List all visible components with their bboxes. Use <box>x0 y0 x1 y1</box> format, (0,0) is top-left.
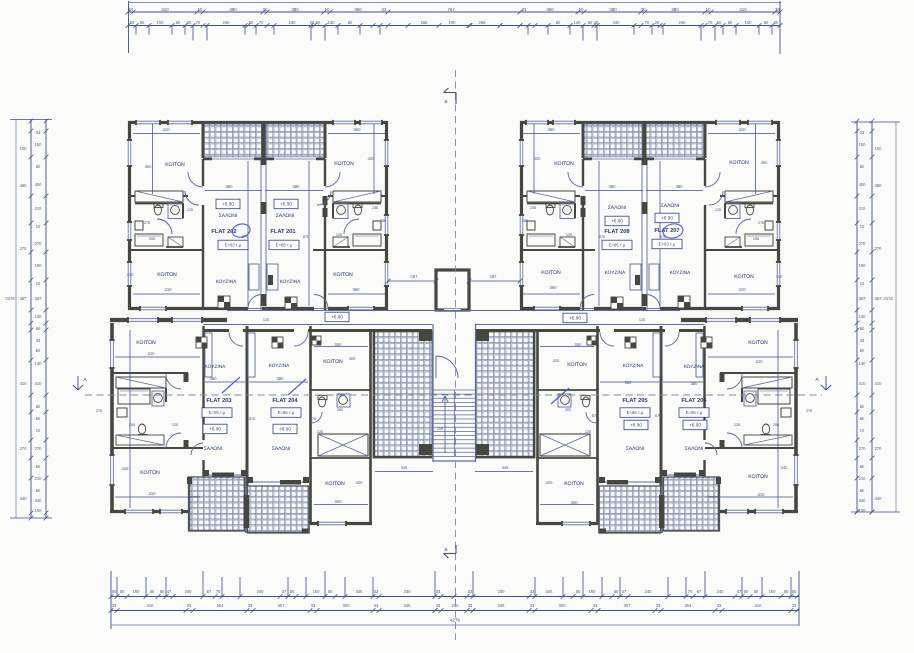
svg-text:ΣΑΛΟΝΙ: ΣΑΛΟΝΙ <box>204 446 223 452</box>
svg-text:80: 80 <box>744 589 749 594</box>
svg-text:80: 80 <box>140 20 145 25</box>
svg-text:380: 380 <box>671 7 679 12</box>
svg-text:387: 387 <box>859 296 867 301</box>
svg-text:870: 870 <box>592 414 598 418</box>
svg-text:80: 80 <box>150 589 155 594</box>
svg-text:+6.90: +6.90 <box>222 202 234 207</box>
svg-text:FLAT 206: FLAT 206 <box>681 398 706 404</box>
svg-text:410: 410 <box>739 7 747 12</box>
svg-text:345: 345 <box>356 589 364 594</box>
svg-text:190: 190 <box>35 263 43 268</box>
svg-text:E=86 τ.μ: E=86 τ.μ <box>278 410 295 415</box>
svg-text:345: 345 <box>546 589 554 594</box>
svg-text:767: 767 <box>447 7 455 12</box>
svg-text:870: 870 <box>310 417 316 421</box>
svg-text:270: 270 <box>35 241 43 246</box>
svg-text:33: 33 <box>128 7 133 12</box>
svg-text:440: 440 <box>35 498 43 503</box>
svg-text:120: 120 <box>263 318 269 322</box>
svg-text:270: 270 <box>875 246 883 251</box>
svg-text:360: 360 <box>353 287 361 292</box>
svg-text:70: 70 <box>708 20 713 25</box>
svg-text:33: 33 <box>382 7 387 12</box>
svg-text:ΚΟΙΤΩΝ: ΚΟΙΤΩΝ <box>334 161 354 167</box>
svg-text:FLAT 201: FLAT 201 <box>270 229 295 235</box>
svg-text:150: 150 <box>35 508 43 513</box>
svg-text:33: 33 <box>775 7 780 12</box>
svg-text:60: 60 <box>36 416 41 421</box>
svg-text:450: 450 <box>859 182 867 187</box>
svg-text:ΣΑΛΟΝΙ: ΣΑΛΟΝΙ <box>276 213 295 219</box>
svg-text:33: 33 <box>468 603 473 608</box>
svg-text:410: 410 <box>739 127 747 132</box>
svg-text:270: 270 <box>875 446 883 451</box>
svg-text:410: 410 <box>859 381 867 386</box>
svg-text:130: 130 <box>859 361 867 366</box>
svg-text:33: 33 <box>717 603 722 608</box>
svg-text:ΚΟΥΖΙΝΑ: ΚΟΥΖΙΝΑ <box>216 279 238 285</box>
svg-text:420: 420 <box>553 358 560 363</box>
svg-text:47: 47 <box>167 589 172 594</box>
svg-text:410: 410 <box>165 287 173 292</box>
svg-text:80: 80 <box>576 589 581 594</box>
svg-text:ΚΟΙΤΩΝ: ΚΟΙΤΩΝ <box>157 272 177 278</box>
svg-text:410: 410 <box>739 287 747 292</box>
svg-text:E=86 τ.μ: E=86 τ.μ <box>627 410 644 415</box>
svg-text:50: 50 <box>774 20 779 25</box>
svg-text:240: 240 <box>717 589 725 594</box>
svg-text:33: 33 <box>436 603 441 608</box>
svg-text:80: 80 <box>290 589 295 594</box>
svg-text:33: 33 <box>248 603 253 608</box>
svg-text:33: 33 <box>468 589 473 594</box>
svg-text:60: 60 <box>860 416 865 421</box>
svg-text:410: 410 <box>875 381 883 386</box>
svg-text:400: 400 <box>349 356 356 361</box>
svg-text:80: 80 <box>36 164 41 169</box>
svg-text:120: 120 <box>734 423 740 427</box>
svg-text:+6.90: +6.90 <box>209 427 221 432</box>
svg-text:33: 33 <box>860 338 865 343</box>
svg-text:190: 190 <box>859 263 867 268</box>
svg-text:240: 240 <box>289 20 297 25</box>
svg-text:380: 380 <box>691 381 699 386</box>
svg-text:70: 70 <box>259 20 264 25</box>
svg-text:410: 410 <box>147 603 155 608</box>
svg-text:E=93 τ.μ: E=93 τ.μ <box>225 243 242 248</box>
svg-text:80: 80 <box>112 589 117 594</box>
svg-text:360: 360 <box>546 7 554 12</box>
svg-text:33: 33 <box>374 589 379 594</box>
svg-text:60: 60 <box>860 488 865 493</box>
svg-text:ΣΑΛΟΝΙ: ΣΑΛΟΝΙ <box>219 213 238 219</box>
svg-text:230: 230 <box>372 206 378 210</box>
svg-text:67: 67 <box>697 589 702 594</box>
svg-text:400: 400 <box>127 272 134 277</box>
svg-text:30: 30 <box>641 7 646 12</box>
svg-text:70: 70 <box>216 589 221 594</box>
svg-text:33: 33 <box>36 338 41 343</box>
svg-text:ΚΟΥΖΙΝΑ: ΚΟΥΖΙΝΑ <box>605 270 627 276</box>
svg-text:80: 80 <box>328 589 333 594</box>
svg-text:380: 380 <box>210 376 218 381</box>
svg-text:47: 47 <box>622 589 627 594</box>
svg-text:80: 80 <box>556 20 561 25</box>
svg-text:265: 265 <box>337 408 343 412</box>
svg-text:70: 70 <box>645 20 650 25</box>
svg-text:230: 230 <box>498 589 506 594</box>
svg-text:80: 80 <box>784 589 789 594</box>
svg-text:150: 150 <box>859 142 867 147</box>
svg-text:270: 270 <box>859 446 867 451</box>
svg-text:354: 354 <box>685 603 693 608</box>
svg-text:FLAT 207: FLAT 207 <box>654 228 679 234</box>
svg-text:400: 400 <box>776 274 783 279</box>
svg-text:10: 10 <box>36 281 41 286</box>
svg-text:20: 20 <box>249 20 254 25</box>
svg-text:420: 420 <box>534 156 541 161</box>
svg-text:+6.90: +6.90 <box>661 216 673 221</box>
svg-text:870: 870 <box>249 417 255 421</box>
svg-text:10: 10 <box>36 224 41 229</box>
svg-text:33: 33 <box>374 603 379 608</box>
svg-text:E=93 τ.μ: E=93 τ.μ <box>659 242 676 247</box>
svg-text:10: 10 <box>860 428 865 433</box>
svg-text:+6.90: +6.90 <box>630 423 642 428</box>
svg-text:130: 130 <box>35 361 43 366</box>
svg-text:150: 150 <box>20 146 28 151</box>
svg-text:230: 230 <box>404 589 412 594</box>
svg-text:240: 240 <box>613 20 621 25</box>
svg-text:80: 80 <box>754 589 759 594</box>
svg-text:33: 33 <box>860 130 865 135</box>
svg-text:480: 480 <box>20 183 28 188</box>
svg-text:ΚΟΙΤΩΝ: ΚΟΙΤΩΝ <box>734 274 754 280</box>
svg-text:120: 120 <box>566 233 572 237</box>
svg-text:80: 80 <box>36 404 41 409</box>
svg-text:80: 80 <box>348 20 353 25</box>
svg-text:200: 200 <box>773 423 779 427</box>
svg-text:150: 150 <box>437 427 443 431</box>
svg-text:150: 150 <box>157 20 165 25</box>
svg-text:ΚΟΙΤΩΝ: ΚΟΙΤΩΝ <box>323 359 343 365</box>
svg-text:210: 210 <box>859 476 867 481</box>
svg-text:440: 440 <box>781 465 788 470</box>
svg-text:10: 10 <box>860 224 865 229</box>
svg-text:345: 345 <box>401 465 408 470</box>
svg-text:357: 357 <box>278 603 286 608</box>
svg-text:410: 410 <box>161 7 169 12</box>
svg-text:20: 20 <box>310 20 315 25</box>
svg-text:150: 150 <box>133 589 141 594</box>
svg-text:210: 210 <box>35 476 43 481</box>
svg-text:33: 33 <box>311 603 316 608</box>
svg-text:380: 380 <box>226 184 234 189</box>
svg-text:270: 270 <box>35 446 43 451</box>
svg-text:300: 300 <box>559 603 567 608</box>
svg-text:ΚΟΙΤΩΝ: ΚΟΙΤΩΝ <box>554 161 574 167</box>
svg-text:10: 10 <box>36 428 41 433</box>
svg-text:870: 870 <box>303 235 309 239</box>
svg-text:150: 150 <box>769 589 777 594</box>
svg-text:450: 450 <box>761 160 768 165</box>
svg-text:ΣΑΛΟΝΙ: ΣΑΛΟΝΙ <box>685 446 704 452</box>
svg-text:410: 410 <box>149 491 157 496</box>
svg-text:150: 150 <box>745 20 753 25</box>
svg-text:150: 150 <box>35 142 43 147</box>
svg-text:80: 80 <box>860 326 865 331</box>
svg-text:120: 120 <box>187 208 193 212</box>
svg-text:440: 440 <box>122 466 129 471</box>
svg-text:345: 345 <box>502 465 509 470</box>
svg-text:270: 270 <box>20 246 28 251</box>
svg-text:ΣΑΛΟΝΙ: ΣΑΛΟΝΙ <box>608 205 627 211</box>
svg-text:357: 357 <box>624 603 632 608</box>
svg-text:387: 387 <box>875 296 883 301</box>
svg-text:240: 240 <box>185 589 193 594</box>
svg-text:+6.90: +6.90 <box>569 316 581 321</box>
svg-text:287: 287 <box>490 274 498 279</box>
svg-text:ΚΟΙΤΩΝ: ΚΟΙΤΩΝ <box>333 272 353 278</box>
svg-text:67: 67 <box>207 589 212 594</box>
svg-text:33: 33 <box>593 603 598 608</box>
svg-text:+6.90: +6.90 <box>611 219 623 224</box>
svg-text:420: 420 <box>546 480 553 485</box>
svg-text:ΚΟΙΤΩΝ: ΚΟΙΤΩΝ <box>748 340 768 346</box>
svg-text:E=96 τ.μ: E=96 τ.μ <box>686 410 703 415</box>
svg-text:360: 360 <box>548 127 556 132</box>
svg-text:200: 200 <box>129 423 135 427</box>
svg-text:60: 60 <box>36 348 41 353</box>
svg-text:120: 120 <box>317 430 323 434</box>
svg-text:ΚΟΙΤΩΝ: ΚΟΙΤΩΝ <box>325 481 345 487</box>
svg-text:ΚΟΙΤΩΝ: ΚΟΙΤΩΝ <box>567 362 587 368</box>
svg-text:130: 130 <box>35 314 43 319</box>
svg-text:270: 270 <box>758 221 764 225</box>
svg-text:80: 80 <box>764 20 769 25</box>
svg-text:380: 380 <box>609 7 617 12</box>
svg-text:60: 60 <box>36 488 41 493</box>
svg-text:410: 410 <box>20 381 28 386</box>
svg-text:280: 280 <box>380 219 386 223</box>
svg-text:ΚΟΙΤΩΝ: ΚΟΙΤΩΝ <box>748 474 768 480</box>
svg-text:B: B <box>444 99 447 104</box>
svg-text:410: 410 <box>758 492 766 497</box>
svg-text:80: 80 <box>316 20 321 25</box>
svg-text:240: 240 <box>645 589 653 594</box>
svg-text:50: 50 <box>130 20 135 25</box>
svg-text:350: 350 <box>571 500 579 505</box>
svg-text:33: 33 <box>36 130 41 135</box>
svg-text:B: B <box>444 547 447 552</box>
svg-text:270: 270 <box>144 221 150 225</box>
svg-text:387: 387 <box>20 296 28 301</box>
svg-text:ΚΟΙΤΩΝ: ΚΟΙΤΩΝ <box>165 162 185 168</box>
svg-text:FLAT 208: FLAT 208 <box>604 229 629 235</box>
svg-text:150: 150 <box>859 508 867 513</box>
svg-text:870: 870 <box>599 235 605 239</box>
svg-text:80: 80 <box>792 589 797 594</box>
svg-text:190: 190 <box>449 20 457 25</box>
svg-text:440: 440 <box>875 496 883 501</box>
svg-text:E=85 τ.μ: E=85 τ.μ <box>276 243 293 248</box>
svg-text:270: 270 <box>20 446 28 451</box>
svg-text:440: 440 <box>20 496 28 501</box>
svg-text:120: 120 <box>639 318 645 322</box>
svg-text:345: 345 <box>404 603 412 608</box>
svg-text:380: 380 <box>609 184 617 189</box>
svg-text:215: 215 <box>35 206 43 211</box>
svg-text:140: 140 <box>574 20 582 25</box>
svg-text:FLAT 203: FLAT 203 <box>206 398 231 404</box>
svg-text:ΚΟΙΤΩΝ: ΚΟΙΤΩΝ <box>541 270 561 276</box>
svg-text:150: 150 <box>589 589 597 594</box>
svg-text:150: 150 <box>313 589 321 594</box>
svg-text:420: 420 <box>368 156 375 161</box>
svg-text:ΚΟΥΖΙΝΑ: ΚΟΥΖΙΝΑ <box>684 364 706 370</box>
svg-text:80: 80 <box>176 20 181 25</box>
svg-text:80: 80 <box>860 404 865 409</box>
svg-text:140: 140 <box>328 20 336 25</box>
svg-text:FLAT 204: FLAT 204 <box>272 398 298 404</box>
svg-text:ΣΑΛΟΝΙ: ΣΑΛΟΝΙ <box>661 203 680 209</box>
svg-text:80: 80 <box>36 326 41 331</box>
svg-text:120: 120 <box>336 233 342 237</box>
svg-text:ΚΟΥΖΙΝΑ: ΚΟΥΖΙΝΑ <box>280 279 302 285</box>
svg-text:80: 80 <box>160 589 165 594</box>
svg-text:410: 410 <box>148 351 156 356</box>
svg-text:380: 380 <box>625 380 633 385</box>
svg-text:30: 30 <box>263 7 268 12</box>
svg-text:350: 350 <box>335 499 343 504</box>
svg-text:150: 150 <box>875 146 883 151</box>
svg-text:10: 10 <box>198 7 203 12</box>
svg-text:33: 33 <box>530 603 535 608</box>
svg-text:33: 33 <box>522 7 527 12</box>
svg-text:33: 33 <box>530 589 535 594</box>
svg-text:300: 300 <box>343 603 351 608</box>
svg-text:380: 380 <box>229 7 237 12</box>
svg-text:ΚΟΥΖΙΝΑ: ΚΟΥΖΙΝΑ <box>269 363 291 369</box>
svg-text:2378: 2378 <box>5 296 15 301</box>
svg-text:E=95 τ.μ: E=95 τ.μ <box>209 410 226 415</box>
svg-text:+6.90: +6.90 <box>280 202 292 207</box>
svg-text:33: 33 <box>187 603 192 608</box>
svg-text:10: 10 <box>706 7 711 12</box>
svg-text:80: 80 <box>120 589 125 594</box>
svg-text:450: 450 <box>145 164 152 169</box>
svg-text:870: 870 <box>655 414 661 418</box>
svg-text:80: 80 <box>728 20 733 25</box>
svg-text:387: 387 <box>35 296 43 301</box>
svg-text:265: 265 <box>565 408 571 412</box>
svg-text:410: 410 <box>35 381 43 386</box>
svg-text:420: 420 <box>356 480 363 485</box>
svg-text:288: 288 <box>421 20 429 25</box>
svg-text:287: 287 <box>411 274 419 279</box>
svg-text:280: 280 <box>522 219 528 223</box>
svg-text:+6.90: +6.90 <box>279 427 291 432</box>
svg-text:350: 350 <box>335 342 343 347</box>
svg-text:10: 10 <box>325 7 330 12</box>
svg-text:440: 440 <box>859 498 867 503</box>
svg-text:288: 288 <box>479 20 487 25</box>
svg-text:ΚΟΙΤΩΝ: ΚΟΙΤΩΝ <box>729 160 749 166</box>
svg-text:80: 80 <box>588 20 593 25</box>
svg-text:70: 70 <box>196 20 201 25</box>
svg-text:360: 360 <box>354 7 362 12</box>
svg-text:33: 33 <box>792 603 797 608</box>
svg-text:ΚΟΙΤΩΝ: ΚΟΙΤΩΝ <box>564 481 584 487</box>
svg-text:120: 120 <box>172 423 178 427</box>
svg-text:80: 80 <box>614 589 619 594</box>
svg-text:360: 360 <box>354 127 362 132</box>
svg-text:50: 50 <box>187 20 192 25</box>
svg-text:ΚΟΥΖΙΝΑ: ΚΟΥΖΙΝΑ <box>670 270 692 276</box>
svg-text:410: 410 <box>755 603 763 608</box>
svg-text:47: 47 <box>737 589 742 594</box>
svg-text:80: 80 <box>860 164 865 169</box>
svg-text:270: 270 <box>859 241 867 246</box>
svg-text:ΣΑΛΟΝΙ: ΣΑΛΟΝΙ <box>272 446 291 452</box>
svg-text:354: 354 <box>217 603 225 608</box>
svg-text:480: 480 <box>875 183 883 188</box>
svg-text:60: 60 <box>860 464 865 469</box>
svg-text:120: 120 <box>585 430 591 434</box>
svg-text:360: 360 <box>550 285 558 290</box>
svg-text:120: 120 <box>715 208 721 212</box>
svg-text:380: 380 <box>277 376 285 381</box>
svg-text:ΚΟΙΤΩΝ: ΚΟΙΤΩΝ <box>140 470 160 476</box>
svg-text:33: 33 <box>436 589 441 594</box>
svg-text:20: 20 <box>594 20 599 25</box>
svg-text:2378: 2378 <box>883 296 893 301</box>
svg-text:33: 33 <box>656 603 661 608</box>
svg-text:350: 350 <box>575 342 583 347</box>
svg-text:10: 10 <box>860 281 865 286</box>
svg-text:33: 33 <box>112 603 117 608</box>
svg-text:130: 130 <box>859 314 867 319</box>
svg-text:240: 240 <box>223 20 231 25</box>
svg-text:50: 50 <box>717 20 722 25</box>
svg-text:270: 270 <box>96 409 102 413</box>
svg-text:ΚΟΥΖΙΝΑ: ΚΟΥΖΙΝΑ <box>623 363 645 369</box>
svg-text:70: 70 <box>688 589 693 594</box>
svg-text:4278: 4278 <box>450 618 460 623</box>
svg-text:ΚΟΥΖΙΝΑ: ΚΟΥΖΙΝΑ <box>205 364 227 370</box>
svg-text:410: 410 <box>163 127 171 132</box>
svg-text:FLAT 205: FLAT 205 <box>622 398 647 404</box>
svg-text:215: 215 <box>859 206 867 211</box>
svg-text:60: 60 <box>860 348 865 353</box>
svg-text:270: 270 <box>806 409 812 413</box>
svg-text:E=85 τ.μ: E=85 τ.μ <box>609 243 626 248</box>
svg-text:380: 380 <box>676 184 684 189</box>
svg-text:380: 380 <box>291 7 299 12</box>
svg-text:410: 410 <box>756 359 764 364</box>
svg-text:200: 200 <box>753 237 759 241</box>
svg-text:60: 60 <box>36 464 41 469</box>
svg-text:ΚΟΙΤΩΝ: ΚΟΙΤΩΝ <box>136 340 156 346</box>
svg-text:+6.90: +6.90 <box>689 423 701 428</box>
svg-text:240: 240 <box>257 589 265 594</box>
svg-text:230: 230 <box>530 206 536 210</box>
svg-text:+6.90: +6.90 <box>331 315 343 320</box>
svg-text:345: 345 <box>498 603 506 608</box>
svg-text:10: 10 <box>579 7 584 12</box>
svg-text:240: 240 <box>679 20 687 25</box>
svg-text:380: 380 <box>293 184 301 189</box>
